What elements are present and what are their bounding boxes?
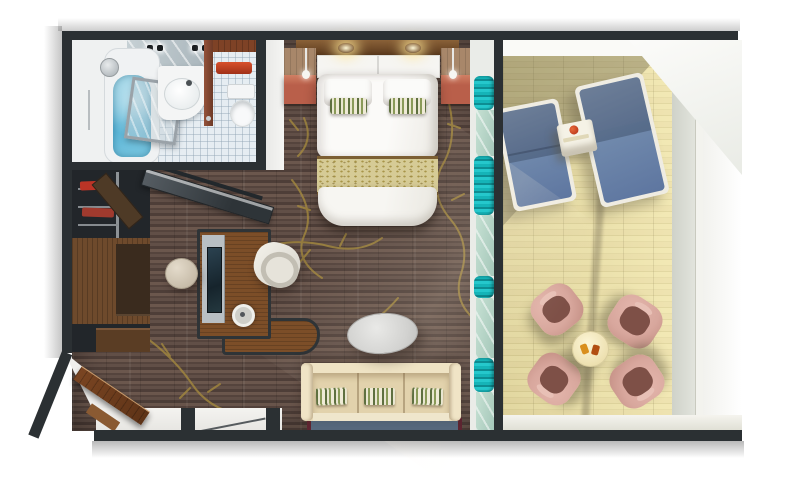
wall-bathroom-right <box>256 40 266 162</box>
pendant-lamp-icon <box>302 70 310 79</box>
towel-bar <box>88 90 90 130</box>
outer-shadow-left <box>44 26 62 358</box>
overhead-cabinet-right <box>441 48 473 75</box>
drink-icon <box>591 344 600 355</box>
ceiling-light-icon <box>405 43 421 53</box>
stool <box>165 258 198 289</box>
bathroom <box>72 40 256 162</box>
wall-bottom <box>94 430 742 441</box>
bed-foot-fold <box>318 187 437 226</box>
overhead-cabinet-left <box>284 48 316 75</box>
outer-shadow-top <box>58 18 740 31</box>
sofa-seat-divider <box>403 373 405 417</box>
outer-shadow-bottom <box>92 441 744 458</box>
window-glass <box>476 215 494 276</box>
ceiling-light-icon <box>338 43 354 53</box>
desk-lamp <box>232 304 255 327</box>
toilet-bowl <box>230 100 255 127</box>
wall-entry-diagonal <box>28 351 72 439</box>
floorplan-stage <box>0 0 800 479</box>
striped-cushion <box>364 388 395 405</box>
vanity-light-icon <box>157 45 163 51</box>
vanity-light-icon <box>192 45 198 51</box>
pendant-lamp-icon <box>449 70 457 79</box>
pendant-cord <box>305 48 307 72</box>
vestibule-post <box>181 408 195 431</box>
bathroom-wood-cabinet <box>212 40 256 52</box>
drink-icon <box>580 343 590 355</box>
sofa-arm-left <box>301 363 313 421</box>
closet-shelf <box>78 224 118 226</box>
vestibule-post <box>266 408 280 431</box>
teal-curtain <box>474 156 494 215</box>
sofa <box>301 363 461 421</box>
luggage-bench <box>96 328 150 352</box>
desk-unit <box>197 229 271 339</box>
accent-pillow-left <box>330 98 367 114</box>
teal-curtain <box>474 76 494 110</box>
bathroom-door <box>204 40 213 126</box>
striped-cushion <box>316 387 348 405</box>
door-handle-icon <box>206 116 211 121</box>
sofa-arm-right <box>449 363 461 421</box>
window-glass <box>476 298 494 358</box>
wall-top <box>62 31 738 40</box>
washbasin <box>164 78 200 110</box>
faucet-icon <box>186 80 192 86</box>
shower-head-icon <box>100 58 119 77</box>
red-item-on-shelf <box>82 207 114 217</box>
bed-light-canopy <box>296 40 459 56</box>
pendant-cord <box>452 48 454 72</box>
side-table <box>556 119 597 157</box>
lamp-core <box>240 312 245 317</box>
nightstand-left <box>284 75 316 104</box>
wall-balcony-divider <box>494 31 503 440</box>
tv-screen <box>207 247 222 313</box>
striped-cushion <box>412 387 444 405</box>
tv-panel <box>202 235 225 323</box>
nightstand-right <box>441 75 473 104</box>
drink-icon <box>569 125 580 136</box>
wardrobe-open-shelf <box>116 244 150 316</box>
window-glass <box>476 392 494 431</box>
wall-bathroom-bottom <box>62 162 266 170</box>
window-wall <box>470 40 494 431</box>
window-glass <box>476 110 494 156</box>
red-towel-rail <box>216 62 252 74</box>
sofa-seat-divider <box>357 373 359 417</box>
bathroom-side-wall-top <box>266 40 284 170</box>
balcony <box>503 40 742 432</box>
round-table <box>572 331 609 367</box>
toilet-tank <box>227 84 255 99</box>
accent-pillow-right <box>389 98 426 114</box>
wall-left <box>62 31 72 353</box>
magazine <box>563 134 589 143</box>
sofa-front-edge <box>313 413 449 421</box>
teal-curtain <box>474 276 494 298</box>
teal-curtain <box>474 358 494 392</box>
